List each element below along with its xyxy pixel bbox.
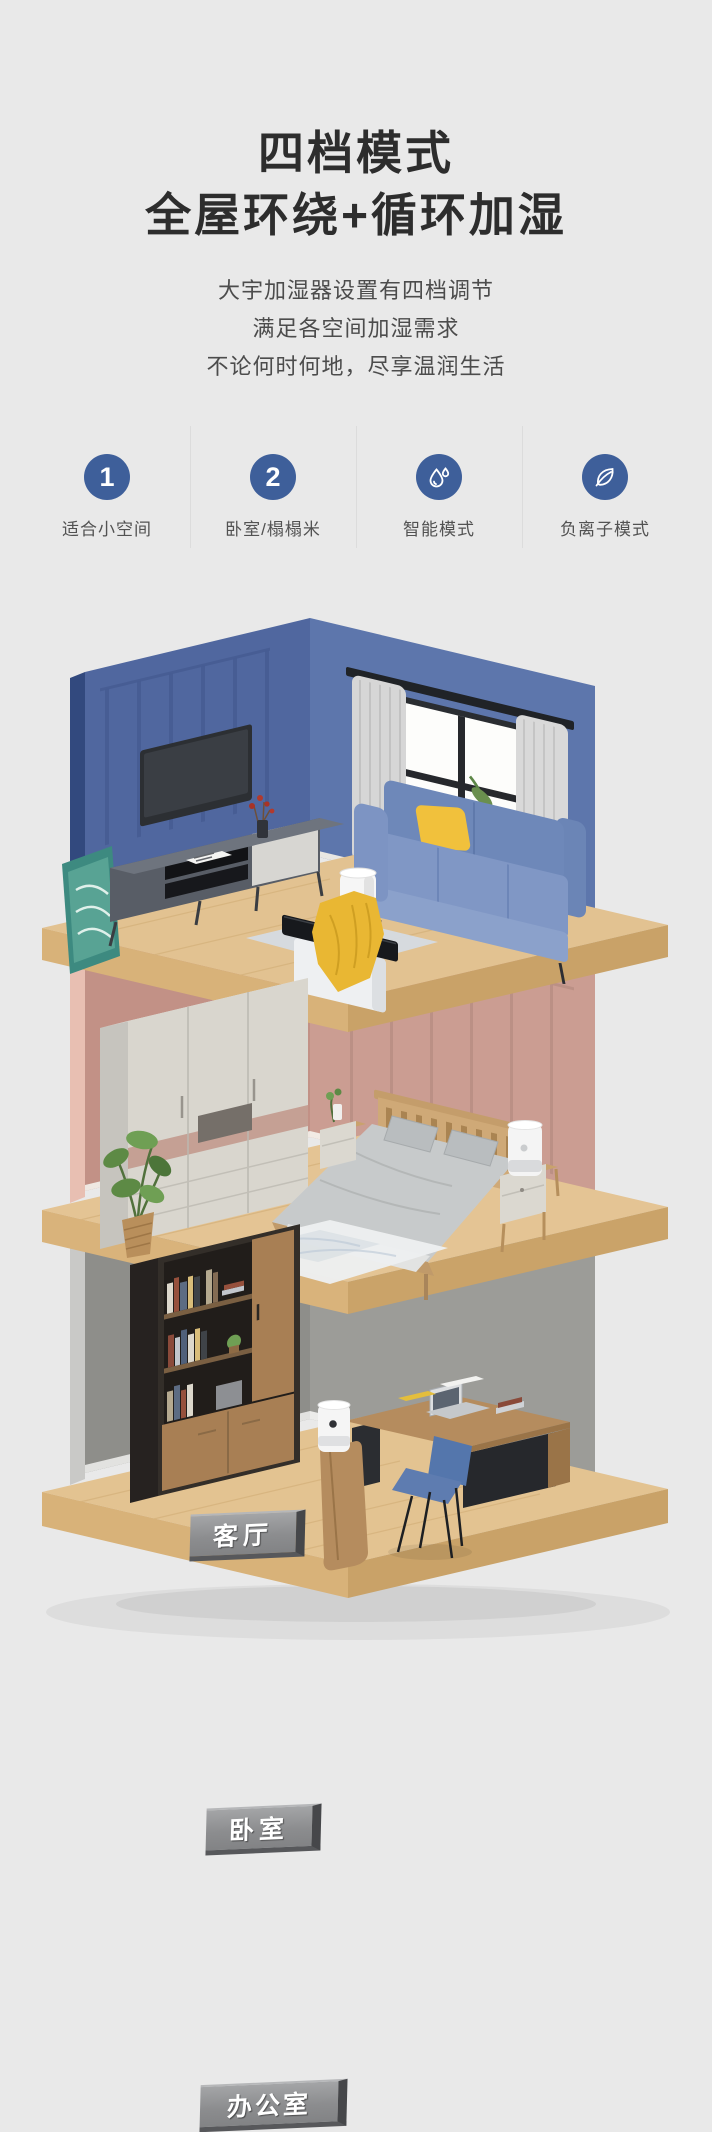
bookshelf: [130, 1224, 300, 1503]
feature-label: 适合小空间: [62, 515, 152, 540]
badge-2-icon: 2: [250, 454, 296, 500]
subtitle: 大宇加湿器设置有四档调节 满足各空间加湿需求 不论何时何地，尽享温润生活: [0, 272, 712, 386]
humidifier-side-stand: [320, 1441, 368, 1570]
feature-anion-mode: 负离子模式: [522, 428, 688, 548]
feature-strip: 1 适合小空间 2 卧室/榻榻米 智能模式 负离子模式: [24, 428, 688, 548]
page-title-line1: 四档模式: [0, 122, 712, 184]
feature-label: 智能模式: [403, 515, 475, 540]
room-sign-office: 办公室: [199, 2079, 347, 2132]
subtitle-line3: 不论何时何地，尽享温润生活: [0, 348, 712, 386]
page-title-line2: 全屋环绕+循环加湿: [0, 184, 712, 246]
feature-bedroom-tatami: 2 卧室/榻榻米: [190, 428, 356, 548]
water-drop-icon: [416, 454, 462, 500]
room-sign-bedroom: 卧室: [205, 1803, 321, 1855]
three-floor-cutaway-illustration: 客厅 卧室 办公室: [0, 560, 712, 1712]
badge-1-icon: 1: [84, 454, 130, 500]
badge-1-number: 1: [99, 462, 114, 493]
badge-2-number: 2: [265, 462, 280, 493]
subtitle-line2: 满足各空间加湿需求: [0, 310, 712, 348]
humidifier-office: [318, 1401, 350, 1453]
humidifier-bedroom: [508, 1121, 542, 1177]
subtitle-line1: 大宇加湿器设置有四档调节: [0, 272, 712, 310]
feature-label: 卧室/榻榻米: [225, 515, 321, 540]
room-sign-living-room: 客厅: [189, 1509, 305, 1561]
feature-small-space: 1 适合小空间: [24, 428, 190, 548]
feature-smart-mode: 智能模式: [356, 428, 522, 548]
feature-label: 负离子模式: [560, 515, 650, 540]
leaf-icon: [582, 454, 628, 500]
header: 四档模式 全屋环绕+循环加湿 大宇加湿器设置有四档调节 满足各空间加湿需求 不论…: [0, 122, 712, 386]
